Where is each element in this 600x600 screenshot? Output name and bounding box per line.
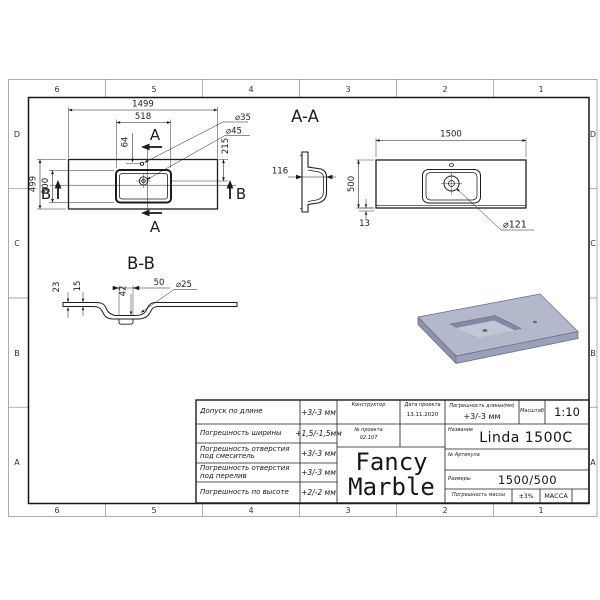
dim-text-13: 13: [359, 219, 370, 229]
section-bb-view: [63, 286, 237, 325]
section-arrow-b-left: [55, 180, 62, 189]
dim-text-d35: ⌀35: [235, 113, 251, 123]
section-bb-text: B-B 23 15 42 50 ⌀25: [52, 254, 192, 296]
length-tolerance-label: Погрешность длины(мм): [447, 403, 517, 410]
section-mark-b-right: B: [236, 185, 246, 203]
section-mark-b-left: B: [41, 185, 51, 203]
section-aa-profile-inner: [308, 170, 324, 202]
zone-number: 3: [345, 85, 350, 94]
tolerance-label: Допуск по длине: [200, 400, 297, 424]
zone-number: 4: [248, 85, 253, 94]
logo-line-2: Marble: [338, 475, 445, 500]
project-number-value: 02.107: [338, 435, 399, 442]
front-view: [356, 138, 534, 230]
tolerance-value: +1,5/-1,5мм: [300, 424, 337, 443]
dim-text-518: 518: [135, 112, 151, 122]
section-aa-view: [288, 152, 336, 212]
dim-text-d25: ⌀25: [176, 280, 192, 290]
zone-number: 2: [442, 506, 447, 515]
front-outline: [376, 160, 526, 208]
logo-line-1: Fancy: [338, 450, 445, 475]
zone-number: 6: [54, 506, 59, 515]
article-label: № Артикула: [448, 452, 508, 459]
scale-label: Масштаб: [519, 400, 545, 424]
dim-text-1500: 1500: [440, 130, 462, 140]
tolerance-value: +3/-3 мм: [300, 463, 337, 482]
zone-letter: A: [14, 458, 20, 467]
section-mark-a-top: A: [150, 126, 161, 144]
leader-d121: [457, 189, 502, 231]
tolerance-label: Погрешность отверстия под перелив: [200, 463, 297, 482]
project-date-label: Дата проекта: [401, 402, 444, 409]
tolerance-value: +3/-3 мм: [300, 400, 337, 424]
dim-text-d45: ⌀45: [226, 127, 242, 137]
tolerance-label: Погрешность по высоте: [200, 482, 297, 503]
project-number-label: № проекта: [338, 427, 399, 434]
scale-value: 1:10: [545, 400, 589, 424]
section-arrow-a-bottom: [141, 210, 150, 217]
zone-number: 5: [151, 85, 156, 94]
tolerance-label: Погрешность отверстия под смеситель: [200, 443, 297, 463]
drawing-sheet: 6 5 4 3 2 1 6 5 4 3 2 1 D C B A D C B A: [0, 0, 600, 600]
drawing-canvas: 6 5 4 3 2 1 6 5 4 3 2 1 D C B A D C B A: [0, 0, 600, 600]
zone-number: 1: [538, 85, 543, 94]
zone-letter: D: [590, 130, 596, 139]
zone-letter: B: [590, 349, 596, 358]
constructor-label: Конструктор: [338, 402, 399, 409]
plan-view: [37, 107, 250, 216]
dim-text-15: 15: [73, 281, 83, 292]
render-drain-hole: [482, 329, 487, 332]
section-aa-profile-outer: [302, 152, 327, 212]
leader-d25: [141, 290, 174, 313]
dim-text-d121: ⌀121: [503, 220, 527, 231]
faucet-hole: [140, 162, 143, 165]
section-bb-drain-stub: [119, 319, 133, 324]
zone-letter: C: [590, 239, 596, 248]
brand-logo: Fancy Marble: [338, 450, 445, 500]
dim-text-42: 42: [119, 286, 129, 297]
render-faucet-hole: [533, 321, 537, 323]
dim-text-1499: 1499: [132, 100, 154, 110]
render-3d: [418, 294, 578, 364]
product-name-value: Linda 1500C: [465, 428, 587, 448]
dim-text-116: 116: [272, 167, 288, 177]
section-aa-text: A-A 116: [272, 107, 320, 177]
zone-number: 5: [151, 506, 156, 515]
zone-number: 6: [54, 85, 59, 94]
section-bb-title: B-B: [127, 254, 155, 273]
mass-tolerance-label: Погрешность массы: [445, 489, 512, 503]
tolerance-value: +3/-3 мм: [300, 443, 337, 463]
zone-number: 2: [442, 85, 447, 94]
project-date-value: 13.11.2020: [401, 410, 444, 419]
mass-column-label: МАССА: [540, 489, 572, 503]
dim-text-64: 64: [121, 137, 131, 148]
size-value: 1500/500: [470, 471, 585, 488]
section-arrow-b-right: [227, 180, 234, 189]
section-mark-a-bottom: A: [150, 218, 161, 236]
zone-number: 1: [538, 506, 543, 515]
zone-number: 4: [248, 506, 253, 515]
dim-text-499: 499: [29, 176, 39, 192]
zone-letter: A: [590, 458, 596, 467]
zone-letter: D: [14, 130, 20, 139]
dim-text-50: 50: [154, 278, 165, 288]
section-arrow-a-top: [141, 144, 150, 151]
mass-tolerance-value: ±3%: [512, 489, 540, 503]
section-bb-profile: [63, 303, 237, 320]
length-tolerance-value: +3/-3 мм: [447, 410, 517, 422]
section-aa-title: A-A: [291, 107, 320, 126]
zone-letter: C: [14, 239, 20, 248]
tolerance-label: Погрешность ширины: [200, 424, 297, 443]
front-faucet-hole: [449, 164, 453, 167]
tolerance-value: +2/-2 мм: [300, 482, 337, 503]
zone-letter: B: [14, 349, 20, 358]
zone-number: 3: [345, 506, 350, 515]
dim-text-23: 23: [52, 282, 62, 293]
dim-text-215: 215: [221, 138, 231, 154]
front-view-text: 1500 500 13 ⌀121: [347, 130, 527, 231]
dim-text-500: 500: [347, 176, 357, 192]
